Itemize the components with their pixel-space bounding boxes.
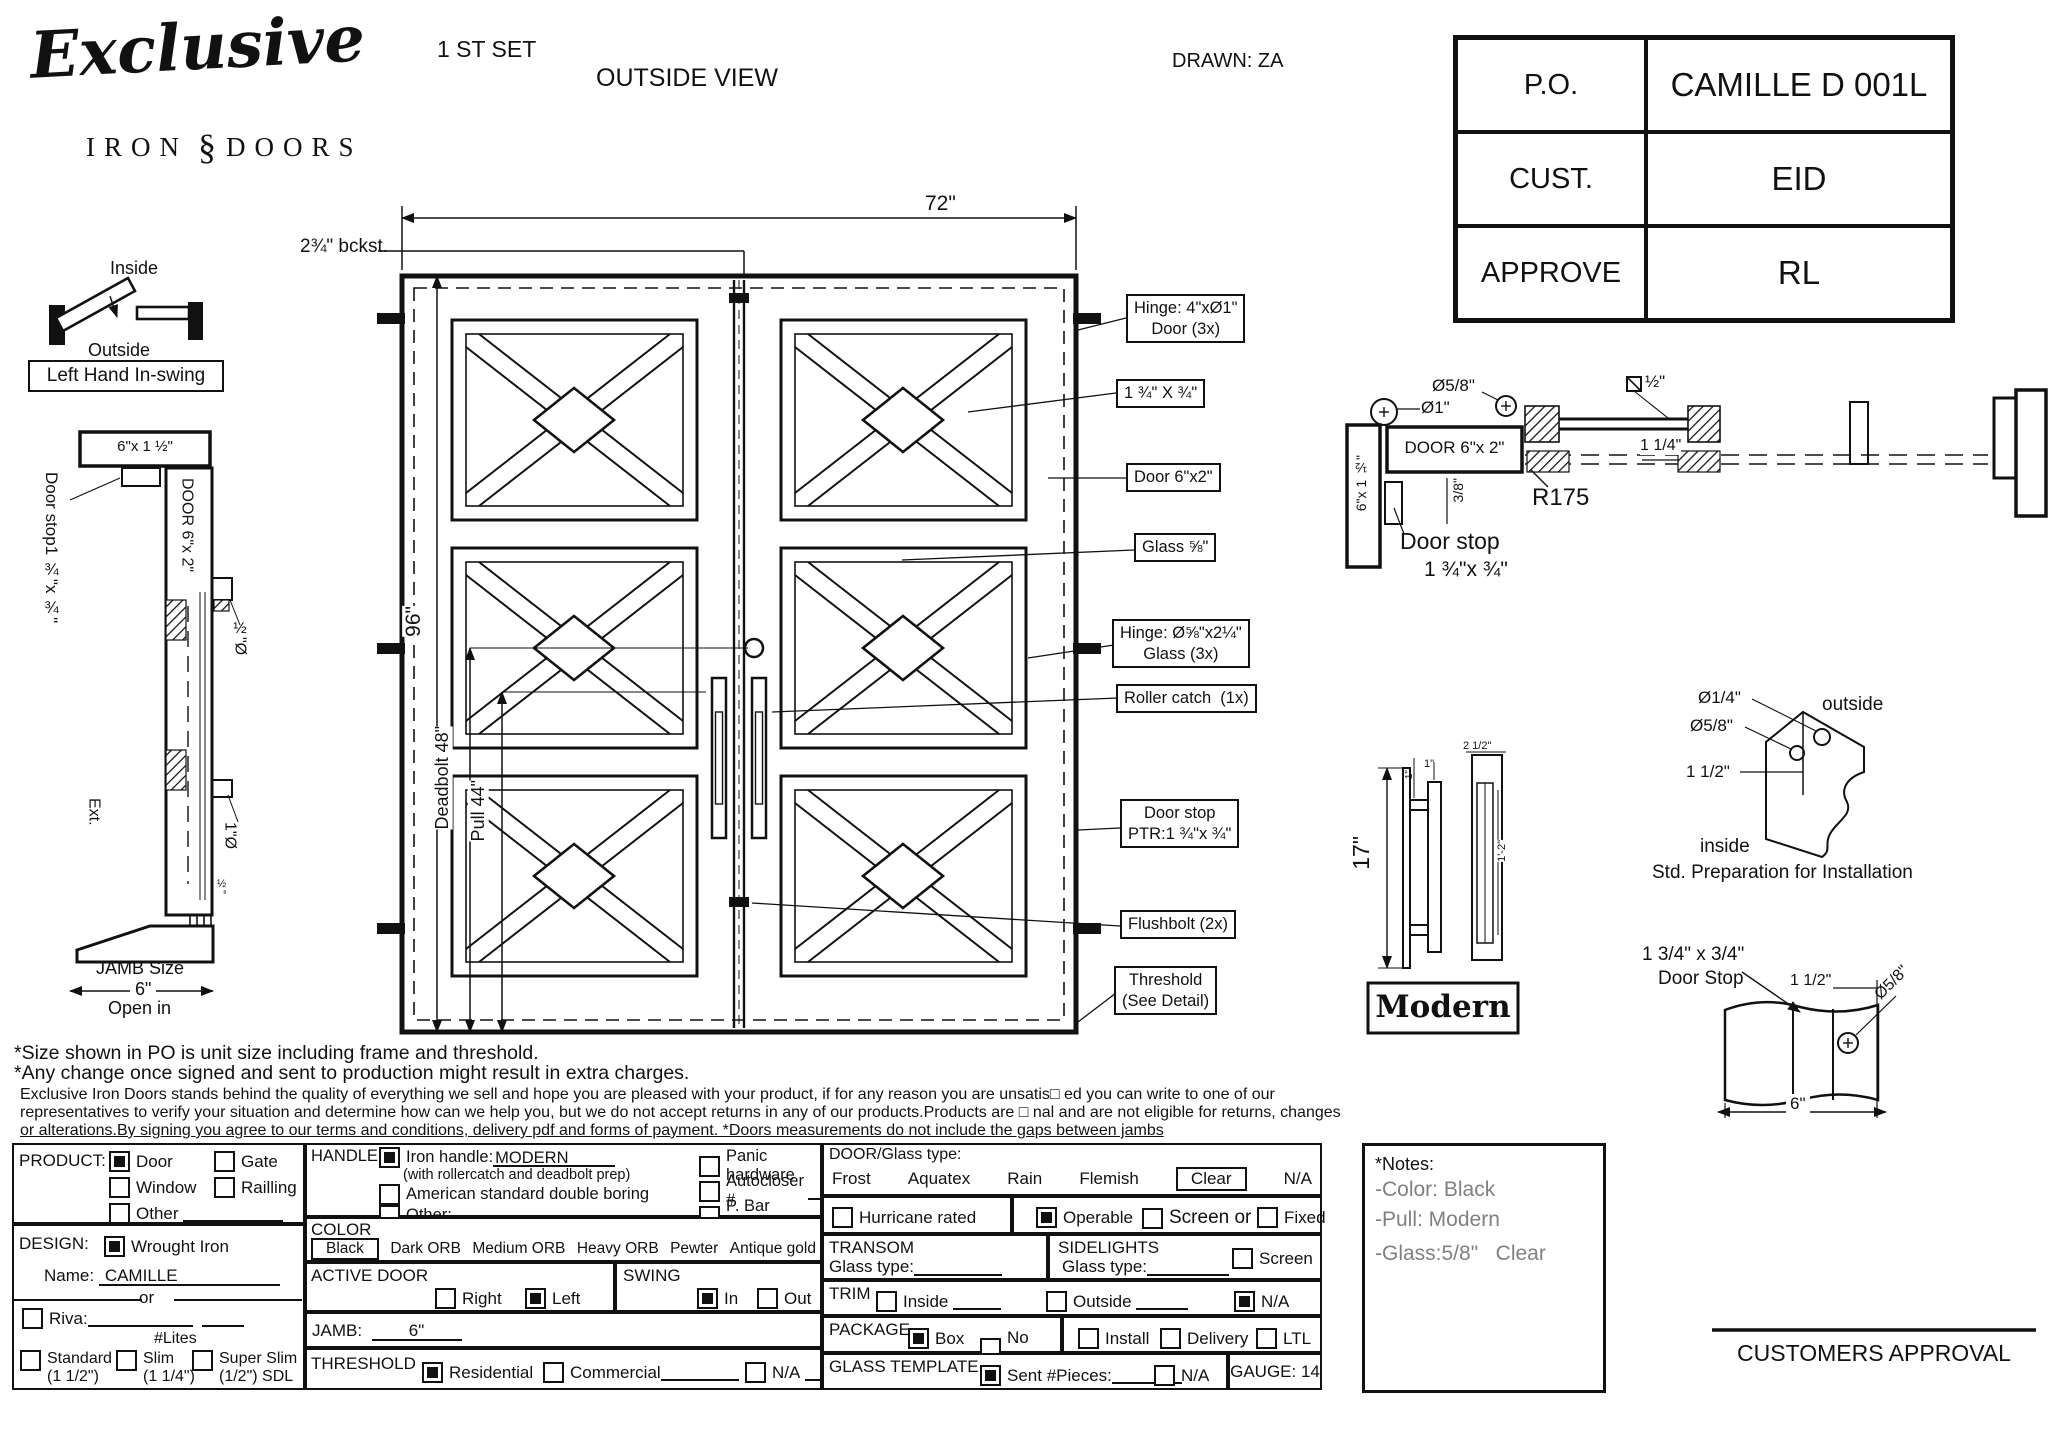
threshold-title: THRESHOLD [311, 1354, 416, 1374]
design-section: DESIGN: Wrought Iron Name: CAMILLE or Ri… [12, 1224, 305, 1390]
disclaimer-line3: or alterations.By signing you agree to o… [20, 1122, 1164, 1140]
handle-width-dim: 2 1/2" [1463, 740, 1491, 753]
railling-checkbox[interactable] [214, 1177, 235, 1198]
product-door: Door [109, 1151, 173, 1172]
handle-height-dim: 17" [1348, 836, 1374, 870]
superslim-checkbox[interactable] [192, 1350, 213, 1371]
inside-label: Inside [110, 258, 158, 279]
backset-dimension: 2¾" bckst. [300, 236, 388, 258]
other-product-checkbox[interactable] [109, 1203, 130, 1224]
handle-title: HANDLE [311, 1147, 378, 1166]
install-outside-label: outside [1822, 694, 1883, 716]
head-r175-label: R175 [1532, 484, 1589, 512]
install-caption: Std. Preparation for Installation [1652, 862, 1913, 884]
callout-hinge-glass: Hinge: Ø⅝"x2¼"Glass (3x) [1112, 619, 1250, 668]
color-black[interactable]: Black [311, 1238, 379, 1260]
left-checkbox[interactable] [525, 1288, 546, 1309]
stopdetail-title1: 1 3/4" x 3/4" [1642, 944, 1744, 966]
half-inch-label: ½" [215, 878, 228, 894]
head-door-label: DOOR 6"x 2" [1387, 438, 1522, 458]
left-half-dia-label: ½"Ø [230, 620, 248, 655]
operable-row: Operable [1036, 1207, 1133, 1228]
handle-iron: Iron handle:MODERN [379, 1147, 615, 1168]
trim-inside-blank[interactable] [953, 1293, 1001, 1310]
package-box: Box [908, 1328, 964, 1349]
or-divider-right [174, 1299, 302, 1301]
door-checkbox[interactable] [109, 1151, 130, 1172]
trim-inside: Inside [876, 1291, 1001, 1312]
trim-section: TRIM Inside Outside N/A [822, 1280, 1322, 1316]
left-door-label: DOOR 6"x 2" [177, 478, 195, 572]
package-section: PACKAGE Box No box [822, 1316, 1062, 1353]
view-label: OUTSIDE VIEW [596, 64, 778, 93]
color-title: COLOR [311, 1220, 371, 1240]
trim-inside-checkbox[interactable] [876, 1291, 897, 1312]
trim-na: N/A [1234, 1291, 1289, 1312]
approve-value: RL [1646, 226, 1952, 320]
head-dia58-label: Ø5/8" [1432, 376, 1475, 396]
riva-checkbox[interactable] [22, 1308, 43, 1329]
stopdetail-width-dim: 6" [1786, 1094, 1810, 1114]
jamb-blank[interactable]: 6" [372, 1321, 462, 1341]
trim-outside-checkbox[interactable] [1046, 1291, 1067, 1312]
design-riva: Riva: [22, 1308, 244, 1329]
callout-door-stop: Door stopPTR:1 ¾"x ¾" [1120, 799, 1239, 848]
transom-glass-blank[interactable] [914, 1259, 1002, 1276]
handle-one-b-dim: 1" [1404, 770, 1416, 779]
threshold-na-checkbox[interactable] [745, 1362, 766, 1383]
drawing-sheet: Exclusive IRON § DOORS 1 ST SET OUTSIDE … [0, 0, 2048, 1442]
door-glass-title: DOOR/Glass type: [829, 1146, 961, 1164]
window-checkbox[interactable] [109, 1177, 130, 1198]
head-doorstop-size: 1 ¾"x ¾" [1424, 558, 1508, 582]
notes-title: *Notes: [1375, 1154, 1434, 1175]
jamb-size-label: JAMB Size [96, 958, 184, 979]
threshold-section: THRESHOLD Residential Commercial N/A [305, 1348, 822, 1390]
logo-iron: IRON [86, 132, 188, 163]
order-info-table: P.O. CAMILLE D 001L CUST. EID APPROVE RL [1453, 35, 1955, 323]
install-offset-label: 1 1/2" [1686, 762, 1730, 782]
disclaimer-line2: representatives to verify your situation… [20, 1104, 1341, 1122]
handle-american: American standard double boring [379, 1184, 649, 1205]
design-name: Name: CAMILLE [44, 1266, 280, 1286]
screen-or-row: Screen or [1142, 1207, 1251, 1229]
left-head-size-label: 6"x 1 ½" [80, 438, 210, 455]
riva-blank2[interactable] [202, 1310, 244, 1327]
width-dimension: 72" [925, 192, 956, 216]
design-type-standard: Standard(1 1/2") [20, 1350, 112, 1386]
customers-approval-label: CUSTOMERS APPROVAL [1712, 1340, 2036, 1366]
glass-aquatex[interactable]: Aquatex [908, 1169, 970, 1189]
ship-delivery: Delivery [1160, 1328, 1248, 1349]
right-checkbox[interactable] [435, 1288, 456, 1309]
trim-title: TRIM [829, 1284, 871, 1304]
trim-outside: Outside [1046, 1291, 1188, 1312]
sidelights-title: SIDELIGHTS [1058, 1238, 1159, 1258]
callout-roller-catch: Roller catch (1x) [1116, 684, 1257, 713]
color-mediumorb[interactable]: Medium ORB [472, 1240, 565, 1258]
color-darkorb[interactable]: Dark ORB [390, 1240, 461, 1258]
head-jamb-label: 6"x 1 ½" [1353, 455, 1369, 511]
slim-checkbox[interactable] [116, 1350, 137, 1371]
glass-clear[interactable]: Clear [1176, 1167, 1247, 1191]
drawn-by-label: DRAWN: ZA [1172, 50, 1283, 73]
fixed-checkbox[interactable] [1257, 1207, 1278, 1228]
gauge-section: GAUGE: 14 [1228, 1353, 1322, 1390]
head-doorstop-label: Door stop [1400, 528, 1500, 554]
screen-checkbox[interactable] [1142, 1208, 1163, 1229]
note-color: -Color: Black [1375, 1178, 1495, 1202]
active-door-title: ACTIVE DOOR [311, 1266, 428, 1286]
lites-label: #Lites [154, 1330, 197, 1348]
cust-value: EID [1646, 132, 1952, 226]
sidelights-section: SIDELIGHTS Glass type: Screen [1048, 1234, 1322, 1280]
swing-out: Out [757, 1288, 811, 1309]
operable-checkbox[interactable] [1036, 1207, 1057, 1228]
head-dim114-label: 1 1/4" [1640, 437, 1681, 455]
transom-title: TRANSOM [829, 1238, 914, 1258]
product-window: Window [109, 1177, 196, 1198]
glass-frost[interactable]: Frost [832, 1169, 871, 1189]
open-in-label: Open in [108, 998, 171, 1019]
ship-install: Install [1078, 1328, 1149, 1349]
glass-rain[interactable]: Rain [1007, 1169, 1042, 1189]
handle-iron-note: (with rollercatch and deadbolt prep) [403, 1167, 630, 1183]
logo-doors: DOORS [226, 132, 363, 163]
transom-section: TRANSOM Glass type: [822, 1234, 1048, 1280]
color-pewter[interactable]: Pewter [670, 1240, 718, 1258]
handle-name-label: Modern [1368, 990, 1518, 1026]
active-left: Left [525, 1288, 580, 1309]
out-checkbox[interactable] [757, 1288, 778, 1309]
company-logo-subtitle: IRON § DOORS [86, 126, 363, 168]
handing-label: Left Hand In-swing [28, 360, 224, 392]
approve-label: APPROVE [1456, 226, 1646, 320]
glass-flemish[interactable]: Flemish [1079, 1169, 1139, 1189]
sidelights-glass-blank[interactable] [1147, 1259, 1229, 1276]
glass-na[interactable]: N/A [1284, 1169, 1312, 1189]
hurricane-checkbox[interactable] [832, 1207, 853, 1228]
po-label: P.O. [1456, 38, 1646, 132]
notes-box: *Notes: -Color: Black -Pull: Modern -Gla… [1362, 1143, 1606, 1393]
callout-hinge-door: Hinge: 4"xØ1"Door (3x) [1126, 294, 1245, 343]
gate-checkbox[interactable] [214, 1151, 235, 1172]
threshold-commercial: Commercial [543, 1362, 739, 1383]
sent-pieces-checkbox[interactable] [980, 1365, 1001, 1386]
wrought-iron-checkbox[interactable] [104, 1236, 125, 1257]
template-na-checkbox[interactable] [1154, 1365, 1175, 1386]
swing-section: SWING In Out [615, 1262, 822, 1312]
hurricane-section: Hurricane rated [822, 1196, 1012, 1234]
american-boring-checkbox[interactable] [379, 1184, 400, 1205]
package-title: PACKAGE [829, 1320, 910, 1340]
fixed-row: Fixed [1257, 1207, 1326, 1228]
left-doorstop-label: Door stop1 ¾"x ¾" [40, 472, 62, 623]
head-dia1-label: Ø1" [1421, 398, 1450, 418]
install-checkbox[interactable] [1078, 1328, 1099, 1349]
color-antiquegold[interactable]: Antique gold [730, 1240, 816, 1258]
install-dia58-label: Ø5/8" [1690, 716, 1733, 736]
or-label: or [139, 1288, 154, 1308]
trim-outside-blank[interactable] [1136, 1293, 1188, 1310]
shipping-section: Install Delivery LTL [1062, 1316, 1322, 1353]
dimension-lines [378, 206, 1076, 1032]
or-divider-left [14, 1299, 142, 1301]
jamb-size-value: 6" [130, 979, 156, 1000]
callout-flushbolt: Flushbolt (2x) [1120, 910, 1236, 939]
operable-section: Operable Screen or Fixed [1012, 1196, 1322, 1234]
other-product-blank[interactable] [183, 1205, 283, 1222]
iron-handle-blank[interactable]: MODERN [493, 1149, 615, 1167]
in-checkbox[interactable] [697, 1288, 718, 1309]
design-wrought: Wrought Iron [104, 1236, 229, 1257]
handle-one-dim: 1" [1424, 758, 1434, 771]
color-section: COLOR Black Dark ORB Medium ORB Heavy OR… [305, 1217, 822, 1262]
product-railling: Railling [214, 1177, 297, 1198]
install-inside-label: inside [1700, 836, 1750, 858]
product-gate: Gate [214, 1151, 278, 1172]
install-dia14-label: Ø1/4" [1698, 688, 1741, 708]
outside-label: Outside [88, 340, 150, 361]
head-half-square-label: ½" [1645, 372, 1665, 392]
handle-length-dim: 1'-2" [1496, 840, 1509, 862]
exterior-label: Ext. [84, 798, 102, 826]
template-sent: Sent #Pieces: [980, 1365, 1182, 1386]
transom-glass-row: Glass type: [829, 1257, 1002, 1277]
jamb-section: JAMB: 6" [305, 1312, 822, 1348]
callout-glass: Glass ⅝" [1134, 533, 1216, 562]
iron-handle-checkbox[interactable] [379, 1147, 400, 1168]
po-value: CAMILLE D 001L [1646, 38, 1952, 132]
callout-door-size: Door 6"x2" [1126, 463, 1221, 492]
swing-title: SWING [623, 1266, 681, 1286]
handle-section: HANDLE Iron handle:MODERN (with rollerca… [305, 1143, 822, 1217]
jamb-row: JAMB: 6" [312, 1321, 462, 1341]
active-right: Right [435, 1288, 502, 1309]
design-type-superslim: Super Slim(1/2") SDL [192, 1350, 297, 1386]
template-na: N/A [1154, 1365, 1209, 1386]
color-heavyorb[interactable]: Heavy ORB [577, 1240, 659, 1258]
callout-threshold: Threshold(See Detail) [1114, 966, 1217, 1015]
note-change: *Any change once signed and sent to prod… [14, 1062, 689, 1084]
door-glass-section: DOOR/Glass type: Frost Aquatex Rain Flem… [822, 1143, 1322, 1196]
left-one-dia-label: 1"Ø [220, 822, 238, 849]
pull-dimension: Pull 44" [468, 780, 489, 841]
head-dim38-label: 3/8" [1450, 478, 1466, 502]
product-title: PRODUCT: [19, 1151, 106, 1171]
sidelights-glass-row: Glass type: [1062, 1257, 1229, 1277]
cust-label: CUST. [1456, 132, 1646, 226]
deadbolt-dimension: Deadbolt 48" [432, 726, 453, 829]
gauge-value: GAUGE: 14 [1230, 1362, 1320, 1382]
stopdetail-half-dim: 1 1/2" [1790, 972, 1831, 990]
hurricane-row: Hurricane rated [832, 1207, 976, 1228]
delivery-checkbox[interactable] [1160, 1328, 1181, 1349]
height-dimension: 96" [402, 606, 426, 637]
design-title: DESIGN: [19, 1234, 89, 1254]
residential-checkbox[interactable] [422, 1362, 443, 1383]
callout-frame-size: 1 ¾" X ¾" [1116, 379, 1205, 408]
trim-na-checkbox[interactable] [1234, 1291, 1255, 1312]
product-other: Other [109, 1203, 283, 1224]
design-name-blank[interactable]: CAMILLE [99, 1266, 280, 1286]
stopdetail-title2: Door Stop [1658, 968, 1744, 990]
glass-template-title: GLASS TEMPLATE [829, 1357, 979, 1377]
note-glass: -Glass:5/8" Clear [1375, 1242, 1546, 1266]
sidelights-screen-checkbox[interactable] [1232, 1248, 1253, 1269]
disclaimer-line1: Exclusive Iron Doors stands behind the q… [20, 1086, 1275, 1104]
swing-in: In [697, 1288, 738, 1309]
set-label: 1 ST SET [437, 36, 536, 62]
sidelights-screen: Screen [1232, 1248, 1313, 1269]
standard-checkbox[interactable] [20, 1350, 41, 1371]
design-type-slim: Slim(1 1/4") [116, 1350, 195, 1386]
commercial-blank[interactable] [661, 1364, 739, 1381]
threshold-residential: Residential [422, 1362, 533, 1383]
note-pull: -Pull: Modern [1375, 1208, 1500, 1232]
box-checkbox[interactable] [908, 1328, 929, 1349]
ltl-checkbox[interactable] [1256, 1328, 1277, 1349]
glass-template-section: GLASS TEMPLATE Sent #Pieces: N/A [822, 1353, 1228, 1390]
left-jamb-section-art [70, 432, 240, 991]
logo-ornament-icon: § [198, 126, 216, 168]
product-section: PRODUCT: Door Gate Window Railling Other [12, 1143, 305, 1224]
riva-blank[interactable] [88, 1310, 193, 1327]
swing-diagram-art [50, 278, 202, 344]
active-door-section: ACTIVE DOOR Right Left [305, 1262, 615, 1312]
install-detail-art [1740, 699, 1864, 857]
commercial-checkbox[interactable] [543, 1362, 564, 1383]
ship-ltl: LTL [1256, 1328, 1311, 1349]
